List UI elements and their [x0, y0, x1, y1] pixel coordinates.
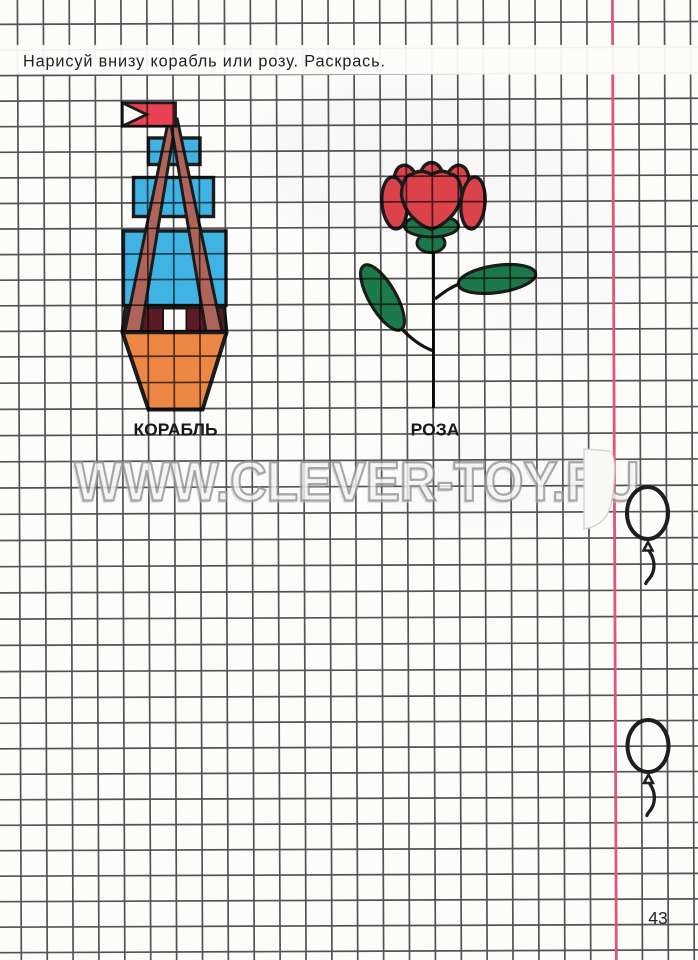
svg-text:WWW.CLEVER-TOY.RU: WWW.CLEVER-TOY.RU — [75, 450, 640, 513]
svg-text:РОЗА: РОЗА — [411, 420, 460, 440]
svg-text:Нарисуй внизу корабль или розу: Нарисуй внизу корабль или розу. Раскрась… — [23, 52, 386, 70]
svg-text:43: 43 — [648, 908, 667, 928]
svg-text:КОРАБЛЬ: КОРАБЛЬ — [133, 420, 217, 440]
